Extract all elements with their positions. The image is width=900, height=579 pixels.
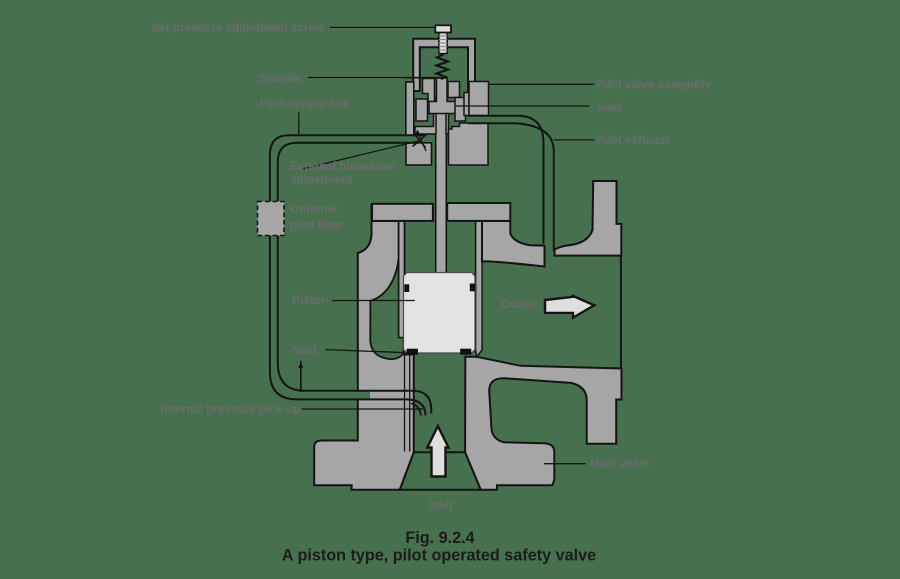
svg-text:Set pressure adjustment screw: Set pressure adjustment screw xyxy=(151,22,325,35)
svg-text:adjustment: adjustment xyxy=(290,174,352,187)
svg-text:Seat: Seat xyxy=(597,101,622,114)
svg-text:Spindle: Spindle xyxy=(259,72,302,85)
svg-text:Inlet: Inlet xyxy=(429,499,453,512)
svg-text:Fig. 9.2.4: Fig. 9.2.4 xyxy=(405,529,474,547)
svg-text:Pilot exhaust: Pilot exhaust xyxy=(597,134,670,147)
svg-text:Internal pressure pick-up: Internal pressure pick-up xyxy=(161,403,301,416)
svg-text:Seal: Seal xyxy=(293,344,317,357)
svg-text:pilot filter: pilot filter xyxy=(290,219,344,232)
svg-text:Outlet: Outlet xyxy=(502,298,536,311)
svg-text:External blowdown: External blowdown xyxy=(290,160,397,173)
svg-text:Pilot supply line: Pilot supply line xyxy=(260,98,350,111)
svg-text:Main valve: Main valve xyxy=(590,457,650,470)
svg-text:Optional: Optional xyxy=(290,203,337,216)
svg-text:Pilot valve assembly: Pilot valve assembly xyxy=(597,79,712,92)
svg-text:Piston: Piston xyxy=(293,294,329,307)
svg-text:A piston type, pilot operated: A piston type, pilot operated safety val… xyxy=(282,547,596,565)
